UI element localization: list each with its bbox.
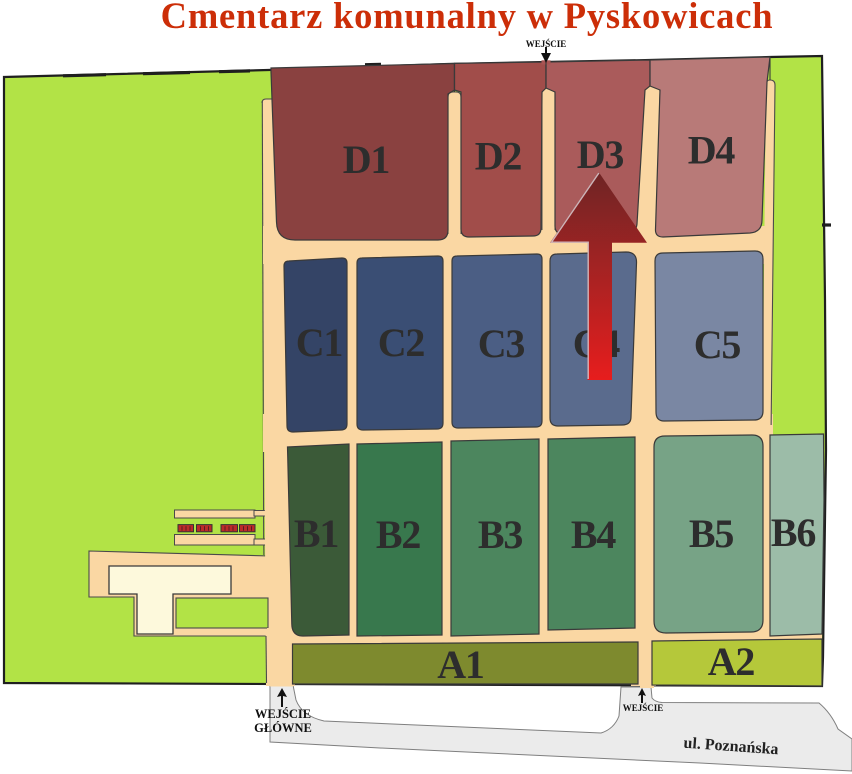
svg-text:D2: D2 [475, 134, 522, 179]
svg-text:A1: A1 [437, 642, 484, 687]
svg-text:C3: C3 [478, 321, 525, 366]
svg-text:D1: D1 [343, 137, 390, 182]
svg-text:B4: B4 [571, 512, 616, 557]
svg-text:D4: D4 [688, 128, 736, 173]
svg-text:B6: B6 [771, 510, 815, 555]
svg-text:B1: B1 [294, 511, 338, 556]
svg-text:WEJŚCIE: WEJŚCIE [255, 707, 311, 721]
svg-text:C2: C2 [378, 320, 425, 365]
svg-text:GŁÓWNE: GŁÓWNE [254, 721, 312, 735]
svg-text:Cmentarz komunalny w Pyskowica: Cmentarz komunalny w Pyskowicach [161, 0, 774, 36]
svg-text:C1: C1 [296, 320, 343, 365]
svg-text:WEJŚCIE: WEJŚCIE [623, 703, 664, 713]
svg-text:C5: C5 [694, 322, 741, 367]
svg-text:B5: B5 [689, 511, 733, 556]
svg-text:A2: A2 [708, 639, 755, 684]
svg-text:D3: D3 [577, 132, 624, 177]
svg-text:B2: B2 [376, 512, 420, 557]
svg-text:B3: B3 [478, 512, 522, 557]
